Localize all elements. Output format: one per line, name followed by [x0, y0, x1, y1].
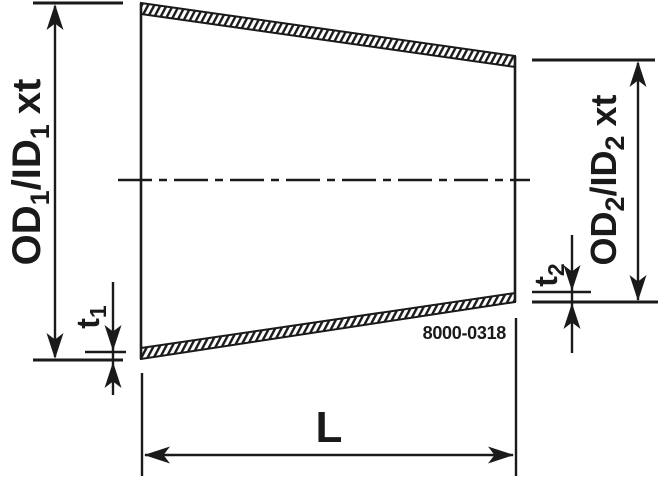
t2-label: t2	[528, 263, 569, 286]
reducer-body	[118, 3, 530, 359]
part-number: 8000-0318	[423, 323, 507, 343]
od2-id2-label: OD2/ID2xt	[583, 94, 630, 265]
length-label: L	[316, 403, 343, 452]
reducer-dimension-drawing: OD1/ID1xt t1 OD2/ID2xt t2	[0, 0, 659, 477]
dimension-t2: t2	[528, 235, 591, 353]
od1-id1-label: OD1/ID1xt	[5, 79, 55, 266]
technical-drawing-page: OD1/ID1xt t1 OD2/ID2xt t2	[0, 0, 659, 477]
dimension-t1: t1	[70, 282, 126, 395]
t1-label: t1	[70, 305, 111, 329]
top-wall-hatched	[141, 3, 515, 67]
